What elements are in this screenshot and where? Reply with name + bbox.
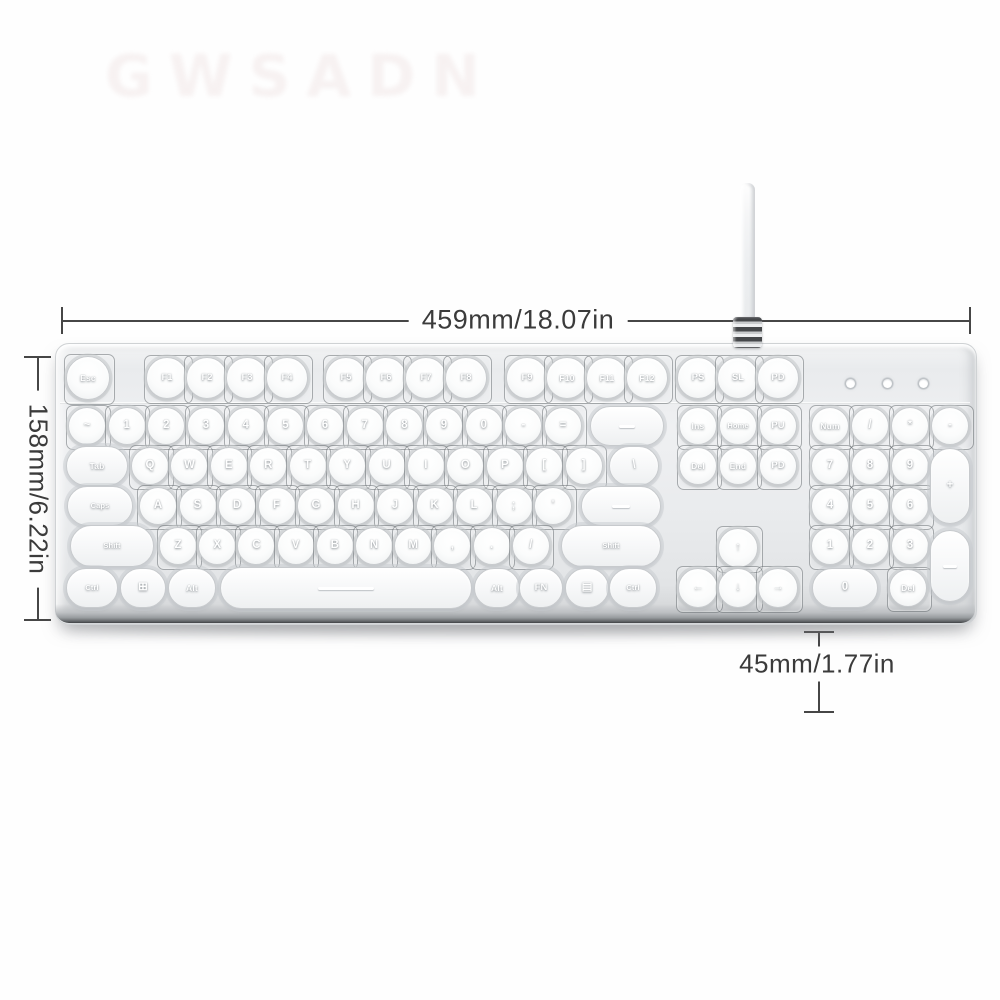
key-label: = xyxy=(560,420,567,432)
keycap: G xyxy=(297,487,335,525)
key-label: 9 xyxy=(441,420,447,432)
key-label: PD xyxy=(771,373,784,383)
key-x: X xyxy=(198,527,236,565)
key-label: Num xyxy=(820,422,840,431)
keycap: 9 xyxy=(891,447,929,485)
keycap: T xyxy=(289,447,327,485)
key-m: M xyxy=(394,527,432,565)
key-label: ] xyxy=(582,460,586,472)
key-nav-pu: PU xyxy=(759,407,797,445)
usb-cable xyxy=(740,183,755,323)
keycap: . xyxy=(473,527,511,565)
key-label xyxy=(943,565,957,568)
key-label: Del xyxy=(691,462,705,471)
key-label xyxy=(318,587,373,590)
key-space xyxy=(220,567,472,609)
keycap: Ctrl xyxy=(66,568,118,608)
keycap: FN xyxy=(519,568,563,608)
keycap: F xyxy=(258,487,296,525)
key-tilde: ~ xyxy=(68,407,106,445)
key-f1: F1 xyxy=(146,357,188,399)
keycap: PU xyxy=(759,407,797,445)
keycap: Home xyxy=(719,407,757,445)
key-label: 4 xyxy=(242,420,248,432)
key-i: I xyxy=(407,447,445,485)
key-label: F xyxy=(273,500,280,512)
key-numpad-8: 8 xyxy=(851,447,889,485)
key-arrow-right: → xyxy=(758,568,798,608)
keycap: Esc xyxy=(66,356,110,400)
keycap: SL xyxy=(717,357,759,399)
keycap xyxy=(581,486,661,526)
keycap: 7 xyxy=(811,447,849,485)
keycap: Del xyxy=(889,569,927,607)
key-label: 6 xyxy=(907,500,913,512)
key-numpad-num: Num xyxy=(811,407,849,445)
key-label: / xyxy=(529,540,532,552)
keycap: F4 xyxy=(266,357,308,399)
keycap: L xyxy=(455,487,493,525)
key-f6: F6 xyxy=(365,357,407,399)
key-numpad-1: 1 xyxy=(811,527,849,565)
keycap: F12 xyxy=(626,357,668,399)
key-label: [ xyxy=(542,460,546,472)
key-label: Alt xyxy=(186,584,198,593)
key-numpad-7: 7 xyxy=(811,447,849,485)
key-menu: ▤ xyxy=(565,568,609,608)
key-enter xyxy=(581,486,661,526)
keycap: F1 xyxy=(146,357,188,399)
key-g: G xyxy=(297,487,335,525)
key-y: Y xyxy=(328,447,366,485)
key-esc: Esc xyxy=(66,356,110,400)
keycap: N xyxy=(355,527,393,565)
key-9: 9 xyxy=(425,407,463,445)
key-label: D xyxy=(233,500,241,512)
key-label: Esc xyxy=(80,374,96,383)
key-label: 2 xyxy=(867,540,873,552)
key-arrow-left: ← xyxy=(678,568,718,608)
keycap: ⊞ xyxy=(120,568,166,608)
keycap: / xyxy=(851,407,889,445)
key-f2: F2 xyxy=(186,357,228,399)
key-label: - xyxy=(521,420,525,432)
key-label: B xyxy=(331,540,339,552)
key-label: W xyxy=(184,460,195,472)
key-label: Shift xyxy=(103,542,120,550)
key-label: PS xyxy=(692,373,705,383)
key-label: ← xyxy=(692,582,704,594)
key-ctrl-left: Ctrl xyxy=(66,568,118,608)
key-backslash: \ xyxy=(609,446,659,486)
key-label: 4 xyxy=(827,500,833,512)
key-label: 7 xyxy=(827,460,833,472)
keycap: Ctrl xyxy=(609,568,657,608)
keycap: M xyxy=(394,527,432,565)
keycap: F6 xyxy=(365,357,407,399)
key-label: 2 xyxy=(163,420,169,432)
key-3: 3 xyxy=(187,407,225,445)
key-label: Shift xyxy=(602,542,619,550)
key-label: . xyxy=(490,540,493,552)
key-label: Tab xyxy=(89,462,104,471)
key-z: Z xyxy=(159,527,197,565)
keycap: Tab xyxy=(66,446,128,486)
keycap: ; xyxy=(495,487,533,525)
key-label: C xyxy=(252,540,260,552)
key-label: N xyxy=(370,540,378,552)
key-fn: FN xyxy=(519,568,563,608)
keycap: 5 xyxy=(851,487,889,525)
key-label: SL xyxy=(732,373,744,383)
keycap: A xyxy=(139,487,177,525)
keycap: 6 xyxy=(891,487,929,525)
key-label: ~ xyxy=(84,420,91,432)
key-caps-lock: Caps xyxy=(67,486,133,526)
key-label: \ xyxy=(632,460,635,472)
key-label xyxy=(619,425,635,428)
key-label: J xyxy=(392,500,398,512)
key-o: O xyxy=(446,447,484,485)
key-arrow-up: ↑ xyxy=(718,528,758,568)
keycap: 3 xyxy=(891,527,929,565)
keycap: Y xyxy=(328,447,366,485)
key-nav-end: End xyxy=(719,447,757,485)
keycap: PD xyxy=(759,447,797,485)
key-shift-left: Shift xyxy=(70,525,154,567)
keycap: ▤ xyxy=(565,568,609,608)
key-label: 5 xyxy=(867,500,873,512)
key-f12: F12 xyxy=(626,357,668,399)
key-numpad-6: 6 xyxy=(891,487,929,525)
key-label: R xyxy=(264,460,272,472)
key-label: 8 xyxy=(867,460,873,472)
key-tab: Tab xyxy=(66,446,128,486)
key-a: A xyxy=(139,487,177,525)
key-label: F1 xyxy=(161,373,172,383)
key-v: V xyxy=(277,527,315,565)
key-c: C xyxy=(237,527,275,565)
keycap xyxy=(220,567,472,609)
key-t: T xyxy=(289,447,327,485)
keycap: F8 xyxy=(445,357,487,399)
keycap: Num xyxy=(811,407,849,445)
key-k: K xyxy=(416,487,454,525)
keycap: Shift xyxy=(70,525,154,567)
keycap: Z xyxy=(159,527,197,565)
keycap: F3 xyxy=(226,357,268,399)
key-numpad-minus: - xyxy=(931,407,969,445)
key-minus: - xyxy=(504,407,542,445)
key-label: O xyxy=(461,460,470,472)
keycap: + xyxy=(930,448,970,524)
key-label: 0 xyxy=(480,420,486,432)
key-label: Del xyxy=(901,584,915,593)
keycap: F2 xyxy=(186,357,228,399)
keycap: Q xyxy=(131,447,169,485)
key-label: ↓ xyxy=(735,582,741,594)
key-8: 8 xyxy=(385,407,423,445)
key-label: ⊞ xyxy=(138,582,148,594)
keycap: ↓ xyxy=(718,568,758,608)
key-label: F5 xyxy=(340,373,351,383)
key-label: Ins xyxy=(692,422,705,431)
key-s: S xyxy=(179,487,217,525)
key-period: . xyxy=(473,527,511,565)
key-label: , xyxy=(451,540,454,552)
keycap: K xyxy=(416,487,454,525)
keycap: S xyxy=(179,487,217,525)
key-p: P xyxy=(486,447,524,485)
key-f: F xyxy=(258,487,296,525)
keycap: End xyxy=(719,447,757,485)
key-equals: = xyxy=(544,407,582,445)
key-6: 6 xyxy=(306,407,344,445)
key-label: → xyxy=(772,582,784,594)
keycap: Alt xyxy=(474,568,520,608)
key-label: 8 xyxy=(401,420,407,432)
key-nav-home: Home xyxy=(719,407,757,445)
key-label: 1 xyxy=(123,420,129,432)
key-slash: / xyxy=(512,527,550,565)
key-label: End xyxy=(730,462,747,471)
keycap: ← xyxy=(678,568,718,608)
key-label: F7 xyxy=(420,373,431,383)
key-label: Alt xyxy=(491,584,503,593)
key-h: H xyxy=(337,487,375,525)
key-label: 3 xyxy=(907,540,913,552)
key-label: 9 xyxy=(907,460,913,472)
key-r: R xyxy=(249,447,287,485)
key-numpad-3: 3 xyxy=(891,527,929,565)
keycap: 7 xyxy=(346,407,384,445)
keycap: F7 xyxy=(405,357,447,399)
key-numpad-4: 4 xyxy=(811,487,849,525)
key-label: ' xyxy=(552,500,555,512)
keycap: Ins xyxy=(679,407,717,445)
key-b: B xyxy=(316,527,354,565)
keycap: I xyxy=(407,447,445,485)
keycap: * xyxy=(891,407,929,445)
key-label: + xyxy=(947,480,954,492)
key-label: X xyxy=(213,540,221,552)
keycap: Del xyxy=(679,447,717,485)
key-label: E xyxy=(225,460,233,472)
key-j: J xyxy=(376,487,414,525)
key-f4: F4 xyxy=(266,357,308,399)
key-0: 0 xyxy=(465,407,503,445)
key-nav-pd: PD xyxy=(759,447,797,485)
key-label: I xyxy=(424,460,427,472)
keycap: 1 xyxy=(108,407,146,445)
key-label: FN xyxy=(535,583,548,593)
keycap: Shift xyxy=(561,525,661,567)
key-label: Z xyxy=(174,540,181,552)
keycap xyxy=(930,530,970,602)
keycap: F10 xyxy=(546,357,588,399)
key-bracket-right: ] xyxy=(565,447,603,485)
key-label: F9 xyxy=(521,373,532,383)
keycap: P xyxy=(486,447,524,485)
keycap: = xyxy=(544,407,582,445)
key-semicolon: ; xyxy=(495,487,533,525)
keycap: 0 xyxy=(812,568,878,608)
key-label: F3 xyxy=(241,373,252,383)
keycap: 4 xyxy=(811,487,849,525)
key-numpad-plus: + xyxy=(930,448,970,524)
key-n: N xyxy=(355,527,393,565)
key-label: - xyxy=(948,420,952,432)
key-label: A xyxy=(154,500,162,512)
key-label: F2 xyxy=(201,373,212,383)
keycap: ↑ xyxy=(718,528,758,568)
key-nav-del: Del xyxy=(679,447,717,485)
key-label: 6 xyxy=(322,420,328,432)
keycap: PS xyxy=(677,357,719,399)
keycap: → xyxy=(758,568,798,608)
key-label: 1 xyxy=(827,540,833,552)
key-label: Ctrl xyxy=(85,584,98,592)
keycap: H xyxy=(337,487,375,525)
key-arrow-down: ↓ xyxy=(718,568,758,608)
keycap: [ xyxy=(525,447,563,485)
key-numpad-enter xyxy=(930,530,970,602)
key-5: 5 xyxy=(266,407,304,445)
key-f8: F8 xyxy=(445,357,487,399)
key-label: F10 xyxy=(559,374,574,383)
key-label: PD xyxy=(771,461,784,471)
key-label: Home xyxy=(727,422,748,430)
key-numpad-5: 5 xyxy=(851,487,889,525)
key-label: Q xyxy=(146,460,155,472)
key-numpad-del: Del xyxy=(889,569,927,607)
key-ps: PS xyxy=(677,357,719,399)
key-numpad-2: 2 xyxy=(851,527,889,565)
key-label: K xyxy=(430,500,438,512)
keycap: - xyxy=(931,407,969,445)
key-label: F6 xyxy=(380,373,391,383)
keycap: E xyxy=(210,447,248,485)
key-sl: SL xyxy=(717,357,759,399)
keycap: J xyxy=(376,487,414,525)
key-label: T xyxy=(304,460,311,472)
keycap: F5 xyxy=(325,357,367,399)
keycap: ] xyxy=(565,447,603,485)
key-label: M xyxy=(408,540,418,552)
key-alt-right: Alt xyxy=(474,568,520,608)
keycap: Alt xyxy=(168,568,216,608)
key-label: ↑ xyxy=(735,542,741,554)
key-f3: F3 xyxy=(226,357,268,399)
key-u: U xyxy=(368,447,406,485)
keycap: ~ xyxy=(68,407,106,445)
key-f10: F10 xyxy=(546,357,588,399)
keycap: ' xyxy=(534,487,572,525)
key-label: ; xyxy=(512,500,516,512)
keycap: 8 xyxy=(851,447,889,485)
key-comma: , xyxy=(433,527,471,565)
product-image: GWSADN 459mm/18.07in 158mm/6.22in 45mm/1… xyxy=(0,0,1000,1000)
key-label: PU xyxy=(771,421,784,431)
key-w: W xyxy=(170,447,208,485)
key-numpad-0: 0 xyxy=(812,568,878,608)
keycap: / xyxy=(512,527,550,565)
key-f9: F9 xyxy=(506,357,548,399)
key-label: S xyxy=(194,500,202,512)
key-label: 3 xyxy=(203,420,209,432)
key-label: G xyxy=(312,500,321,512)
key-numpad-9: 9 xyxy=(891,447,929,485)
key-4: 4 xyxy=(227,407,265,445)
key-quote: ' xyxy=(534,487,572,525)
keycap: B xyxy=(316,527,354,565)
key-f11: F11 xyxy=(586,357,628,399)
key-label: P xyxy=(501,460,509,472)
key-win: ⊞ xyxy=(120,568,166,608)
key-label: V xyxy=(292,540,300,552)
key-numpad-asterisk: * xyxy=(891,407,929,445)
key-nav-ins: Ins xyxy=(679,407,717,445)
keycap: Caps xyxy=(67,486,133,526)
keycap: 4 xyxy=(227,407,265,445)
keycap: 1 xyxy=(811,527,849,565)
key-label: 0 xyxy=(842,582,848,594)
key-label: F4 xyxy=(281,373,292,383)
key-shift-right: Shift xyxy=(561,525,661,567)
key-2: 2 xyxy=(147,407,185,445)
keycap: D xyxy=(218,487,256,525)
keycap: 6 xyxy=(306,407,344,445)
key-l: L xyxy=(455,487,493,525)
keycap: X xyxy=(198,527,236,565)
key-q: Q xyxy=(131,447,169,485)
key-label: H xyxy=(351,500,359,512)
key-e: E xyxy=(210,447,248,485)
keycap: F11 xyxy=(586,357,628,399)
key-ctrl-right: Ctrl xyxy=(609,568,657,608)
key-alt-left: Alt xyxy=(168,568,216,608)
key-f7: F7 xyxy=(405,357,447,399)
key-7: 7 xyxy=(346,407,384,445)
key-bracket-left: [ xyxy=(525,447,563,485)
key-pd: PD xyxy=(757,357,799,399)
keycap: 0 xyxy=(465,407,503,445)
keycap xyxy=(590,406,664,446)
keycap-layer: EscF1F2F3F4F5F6F7F8F9F10F11F12PSSLPD~123… xyxy=(0,0,1000,1000)
keycap: \ xyxy=(609,446,659,486)
key-label: 5 xyxy=(282,420,288,432)
key-label: * xyxy=(908,420,912,432)
key-numpad-slash: / xyxy=(851,407,889,445)
keycap: F9 xyxy=(506,357,548,399)
key-label: F8 xyxy=(460,373,471,383)
key-label: Ctrl xyxy=(626,584,639,592)
key-label: L xyxy=(470,500,477,512)
key-label: U xyxy=(382,460,390,472)
keycap: U xyxy=(368,447,406,485)
key-label: 7 xyxy=(361,420,367,432)
cable-strain-relief xyxy=(733,317,762,348)
key-label xyxy=(612,505,630,508)
keycap: 2 xyxy=(851,527,889,565)
key-1: 1 xyxy=(108,407,146,445)
keycap: PD xyxy=(757,357,799,399)
keycap: V xyxy=(277,527,315,565)
keycap: 9 xyxy=(425,407,463,445)
key-label: Caps xyxy=(91,502,110,510)
key-label: F11 xyxy=(600,374,615,383)
key-label: ▤ xyxy=(582,582,593,594)
